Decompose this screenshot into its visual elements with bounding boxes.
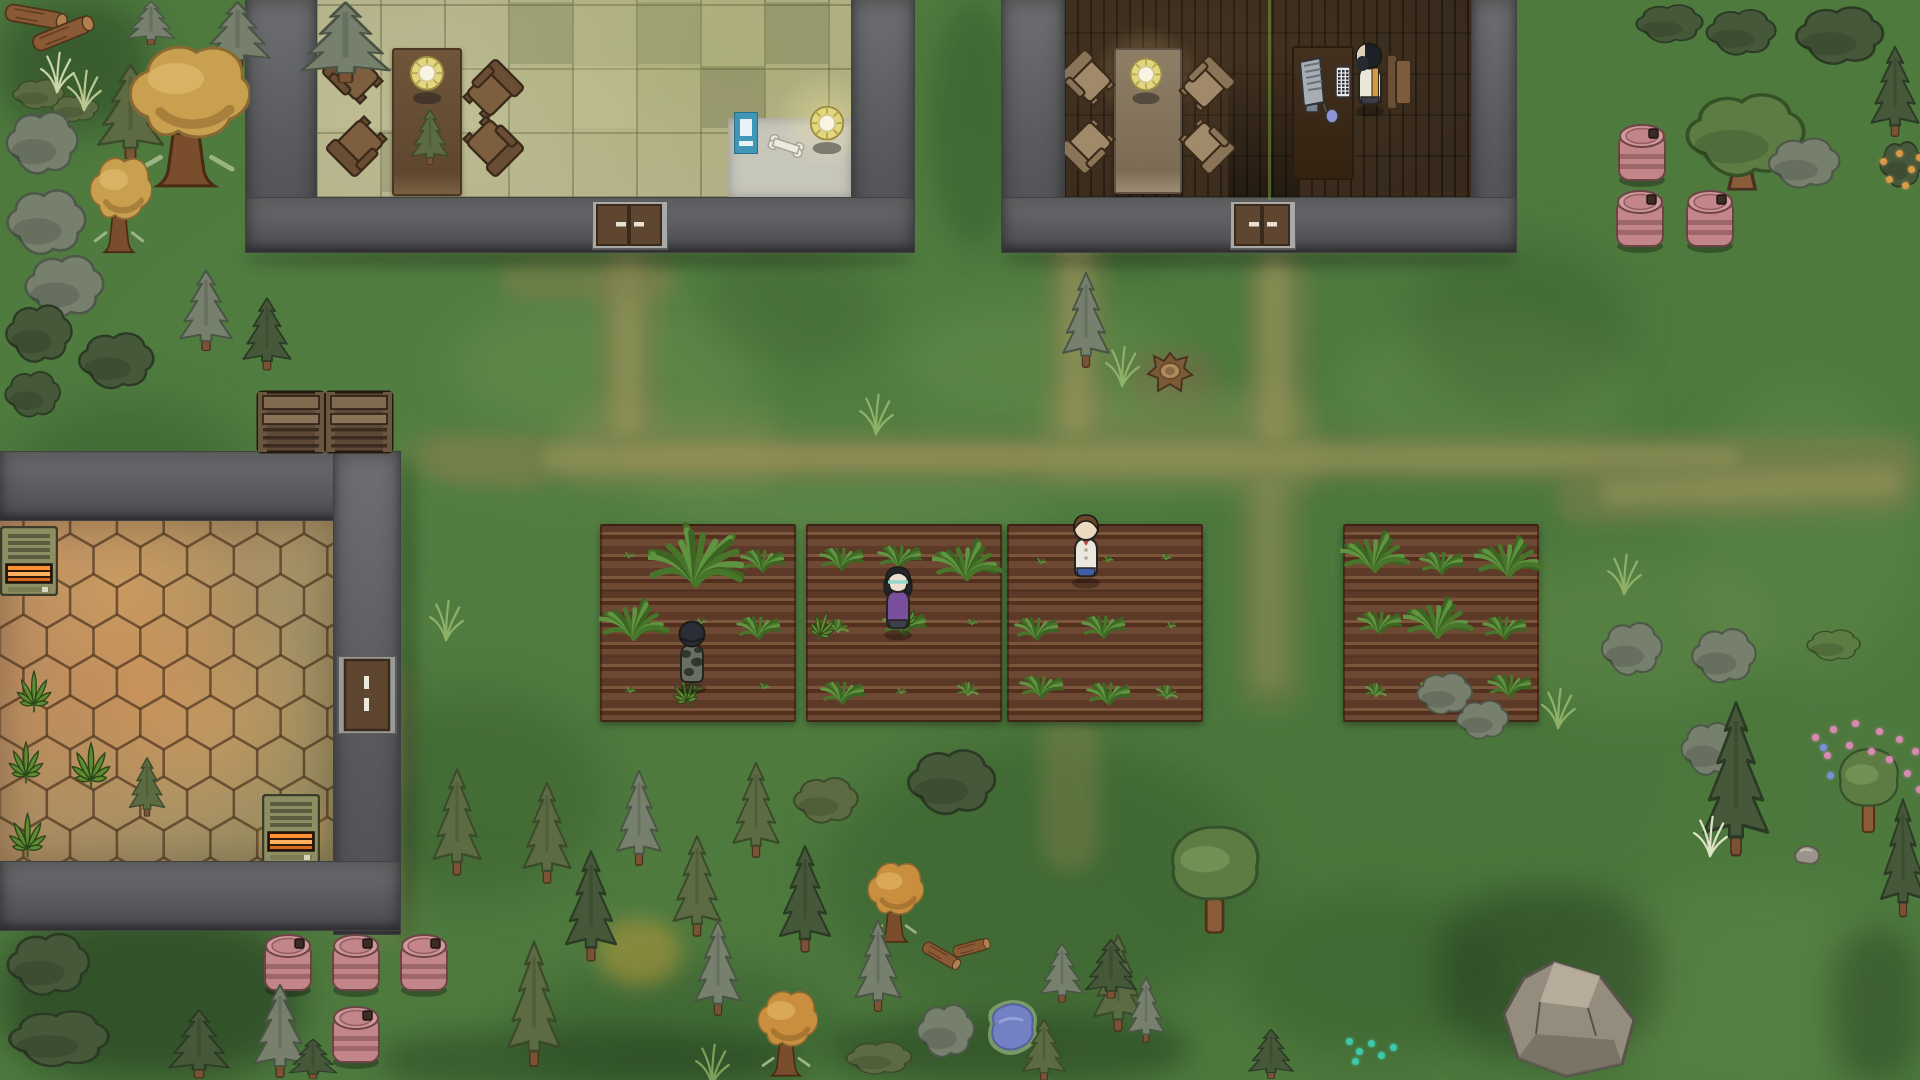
pine-tree[interactable] [282, 1038, 344, 1080]
grass-tuft [854, 390, 898, 438]
terrain-shadow [246, 252, 914, 266]
bushy-tree[interactable] [1802, 626, 1862, 668]
orange-flowers [1880, 158, 1887, 165]
pine-tree[interactable] [236, 296, 298, 372]
bushy-tree[interactable] [1630, 0, 1705, 52]
teal-sprouts [1368, 1040, 1375, 1047]
bushy-tree[interactable] [0, 366, 62, 428]
crop-plant-cannabis[interactable] [738, 527, 788, 577]
crop-plant-cannabis[interactable] [1355, 589, 1405, 639]
orange-flowers [1908, 166, 1915, 173]
office-doorway-shadow [1228, 0, 1298, 198]
crop-plant-cannabis[interactable] [1485, 652, 1535, 702]
zone-boundary-line [1268, 0, 1271, 200]
dining-bottom-wall [246, 198, 914, 252]
crop-plant-cannabis[interactable] [1359, 666, 1393, 700]
pink-flowers [1876, 728, 1883, 735]
pine-tree[interactable] [426, 766, 488, 878]
grow-bottom-wall [0, 862, 400, 930]
intersection-worn [1040, 392, 1320, 492]
large-rock[interactable] [1496, 956, 1646, 1080]
grow-room-door[interactable] [336, 656, 398, 734]
pine-tree[interactable] [1016, 1018, 1072, 1080]
pink-flowers [1916, 786, 1920, 793]
grass-tuft [1602, 550, 1646, 598]
bushy-tree[interactable] [72, 326, 156, 402]
crop-plant-cannabis[interactable] [1156, 542, 1176, 562]
terrain-shadow [380, 1030, 800, 1080]
teal-sprouts [1390, 1044, 1397, 1051]
pine-tree[interactable] [772, 843, 838, 955]
floor-tile-shade [638, 2, 700, 64]
game-map [0, 0, 1920, 1080]
orange-flowers [1886, 176, 1893, 183]
grass-patch [1410, 240, 1630, 410]
orange-flowers [1896, 150, 1903, 157]
crop-plant-cannabis[interactable] [1084, 660, 1134, 710]
pink-flowers [1886, 756, 1893, 763]
bushy-tree[interactable] [0, 298, 74, 376]
indoor-cannabis-plant[interactable] [0, 806, 55, 861]
pink-flowers [1812, 734, 1819, 741]
crop-plant-cannabis[interactable] [1012, 595, 1062, 645]
pawn-office-researcher[interactable] [1350, 38, 1390, 118]
bushy-tree[interactable] [1596, 616, 1664, 688]
crop-plant-cannabis[interactable] [951, 665, 985, 699]
round-tree[interactable] [1158, 818, 1270, 940]
pink-flowers [1912, 748, 1919, 755]
bushy-tree[interactable] [0, 1004, 112, 1080]
crop-plant-cannabis[interactable] [1340, 509, 1410, 579]
pine-tree[interactable] [848, 918, 908, 1014]
crop-plant-cannabis[interactable] [1079, 593, 1129, 643]
bushy-tree[interactable] [840, 1038, 914, 1080]
bushy-tree[interactable] [912, 998, 976, 1070]
crop-plant-cannabis[interactable] [817, 525, 867, 575]
crop-plant-cannabis[interactable] [599, 577, 669, 647]
yellow-tree[interactable] [86, 152, 152, 257]
crop-plant-cannabis[interactable] [1480, 594, 1530, 644]
pine-tree[interactable] [610, 768, 668, 868]
indoor-cannabis-plant[interactable] [0, 735, 52, 787]
indoor-cannabis-plant[interactable] [8, 664, 60, 716]
table-lamp[interactable] [1126, 54, 1166, 104]
bushy-tree[interactable] [0, 926, 92, 1010]
grass-tuft [1536, 684, 1580, 732]
floor-lamp[interactable] [806, 102, 848, 154]
pink-flowers [1824, 752, 1831, 759]
bushy-tree[interactable] [0, 104, 80, 189]
teal-sprouts [1346, 1038, 1353, 1045]
terrain-shadow [1002, 252, 1516, 266]
pawn-field-worker-3[interactable] [1066, 510, 1106, 590]
pine-tree[interactable] [1122, 976, 1170, 1044]
wall-art-poster[interactable] [734, 112, 758, 154]
bushy-tree[interactable] [788, 772, 860, 834]
terrain-shadow [1830, 930, 1920, 1080]
crop-plant-cannabis[interactable] [1403, 575, 1473, 645]
pine-tree[interactable] [160, 1008, 238, 1080]
bushy-tree[interactable] [1452, 696, 1510, 748]
crop-plant-cannabis[interactable] [1161, 610, 1181, 630]
floor-tile-shade [574, 66, 636, 128]
bushy-tree[interactable] [1700, 4, 1778, 66]
heater-1[interactable] [0, 526, 58, 596]
crop-plant-cannabis[interactable] [754, 671, 774, 691]
pawn-field-worker-2[interactable] [878, 562, 918, 642]
pine-tree[interactable] [288, 0, 403, 85]
grass-tuft [690, 1040, 734, 1080]
crop-plant-cannabis[interactable] [619, 540, 639, 560]
pine-tree[interactable] [1864, 44, 1920, 139]
indoor-cannabis-plant[interactable] [62, 735, 120, 793]
teal-sprouts [1356, 1048, 1363, 1055]
pine-tree[interactable] [124, 756, 170, 818]
fermenting-barrel[interactable] [398, 928, 450, 998]
grass-tuft [424, 596, 468, 644]
pine-tree[interactable] [1242, 1028, 1300, 1080]
table-lamp[interactable] [406, 52, 448, 104]
pink-flowers [1830, 726, 1837, 733]
dining-door[interactable] [592, 196, 668, 254]
mid-cross-path [500, 262, 680, 300]
orange-flowers [1916, 154, 1920, 161]
bushy-tree[interactable] [1686, 622, 1758, 696]
teal-sprouts [1378, 1052, 1385, 1059]
crop-plant-cannabis[interactable] [1417, 529, 1467, 579]
crop-plant-cannabis[interactable] [1017, 653, 1067, 703]
crop-plant-cannabis[interactable] [932, 517, 1002, 587]
office-door[interactable] [1230, 196, 1296, 254]
orange-tree[interactable] [754, 986, 818, 1080]
blue-flowers [1820, 744, 1827, 751]
wooden-crate[interactable] [256, 388, 326, 456]
fermenting-barrel[interactable] [1614, 184, 1666, 254]
orange-flowers [1902, 182, 1909, 189]
bushy-tree[interactable] [900, 742, 998, 830]
pink-flowers [1846, 742, 1853, 749]
floor-tile-shade [510, 2, 572, 64]
blue-flowers [1827, 772, 1834, 779]
crop-plant-cannabis[interactable] [1474, 514, 1544, 584]
small-rock[interactable] [1790, 842, 1822, 866]
pink-flowers [1904, 770, 1911, 777]
pawn-field-worker-1[interactable] [672, 616, 712, 696]
grass-tuft [1688, 812, 1732, 860]
crop-plant-cannabis[interactable] [1031, 546, 1051, 566]
crop-plant-cannabis[interactable] [734, 594, 784, 644]
grass-patch [700, 250, 880, 370]
fermenting-barrel[interactable] [1616, 118, 1668, 188]
crop-plant-cannabis[interactable] [962, 607, 982, 627]
teal-sprouts [1352, 1058, 1359, 1065]
tree-stump[interactable] [1146, 350, 1194, 394]
pine-tree[interactable] [406, 108, 454, 166]
heater-2[interactable] [262, 794, 320, 864]
crop-plant-cannabis[interactable] [818, 659, 868, 709]
pine-tree[interactable] [172, 268, 240, 353]
terrain-shadow [400, 458, 416, 936]
crop-plant-cannabis[interactable] [620, 675, 640, 695]
crop-plant-cannabis[interactable] [1150, 668, 1184, 702]
fermenting-barrel[interactable] [330, 928, 382, 998]
below-fields-path [1040, 712, 1100, 872]
computer-console[interactable] [1296, 54, 1356, 126]
pink-flowers [1868, 748, 1875, 755]
crop-plant-cannabis[interactable] [891, 676, 911, 696]
wooden-crate[interactable] [324, 388, 394, 456]
pink-flowers [1852, 720, 1859, 727]
intersection-worn-2 [560, 408, 780, 488]
grass-tuft [62, 66, 106, 114]
pine-tree[interactable] [688, 918, 748, 1018]
pink-flowers [1896, 736, 1903, 743]
bushy-tree[interactable] [1762, 132, 1842, 200]
pine-tree[interactable] [1874, 796, 1920, 920]
fields-gap-core [1252, 480, 1286, 690]
grass-tuft [1100, 342, 1144, 390]
